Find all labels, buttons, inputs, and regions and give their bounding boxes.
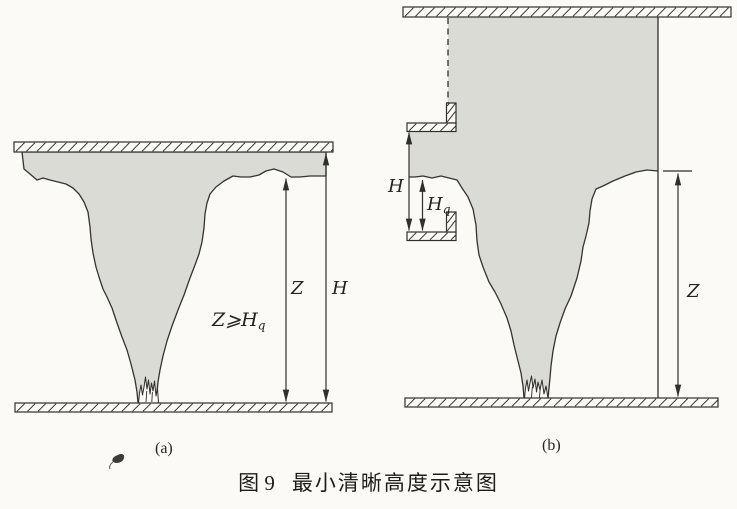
figure-title: 最小清晰高度示意图 — [292, 467, 499, 497]
z-dimension-label-b: Z — [686, 281, 700, 302]
clear-height-condition-label: Z⩾Hq — [211, 309, 266, 333]
floor-hatch-b — [405, 398, 719, 407]
figure-diagram: Z H Z⩾Hq (a) — [0, 0, 737, 509]
ceiling-hatch-a — [14, 142, 340, 152]
z-dimension-label-a: Z — [290, 278, 304, 299]
figure-number: 图 9 — [238, 467, 275, 497]
h-dimension-label-b: H — [387, 176, 404, 197]
panel-a-label: (a) — [155, 440, 173, 457]
panel-b-label: (b) — [542, 437, 561, 454]
ceiling-hatch-b — [403, 7, 731, 17]
document-page: Z H Z⩾Hq (a) — [0, 0, 737, 509]
soffit-lower-bar — [407, 232, 458, 241]
panel-a: Z H Z⩾Hq (a) — [14, 142, 348, 469]
figure-caption: 图 9 最小清晰高度示意图 — [0, 467, 737, 497]
soffit-upper-bar — [407, 123, 458, 132]
smoke-plume-a — [22, 152, 326, 403]
panel-b: H Hq Z (b) — [387, 7, 731, 454]
h-dimension-label-a: H — [331, 278, 348, 299]
floor-hatch-a — [15, 403, 332, 412]
hq-dimension-label-b: Hq — [426, 194, 451, 217]
